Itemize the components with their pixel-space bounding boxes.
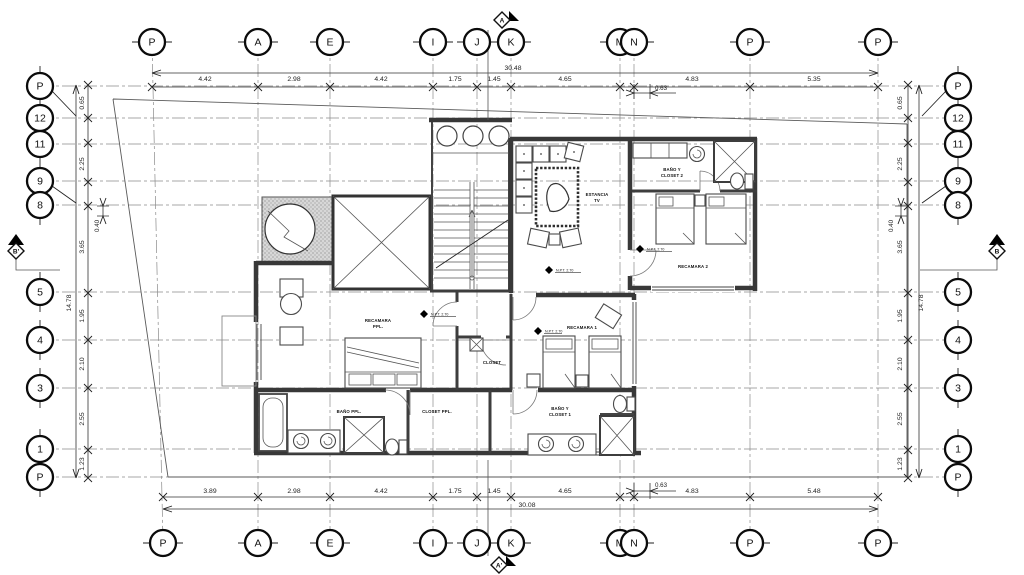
grid-bubble-label: N [630,538,638,550]
stair-treads [434,190,508,278]
bano-closet1-fixtures [528,396,635,456]
floor-plan-sheet: 4.42 2.98 4.42 1.75 1.45 4.65 4.83 5.35 … [0,0,1024,575]
dim-label: 3.89 [203,488,216,495]
tv-console-icon [547,184,569,212]
room-label-estancia: ESTANCIA [586,192,609,197]
skylight-circle [489,126,509,146]
grid-bubble-label: 8 [37,200,43,212]
dim-label: 5.48 [807,488,820,495]
skylight-circle [463,126,483,146]
bed [656,194,694,244]
window-gap [631,300,638,386]
room-label-closet: CLOSET [483,360,502,365]
side-table [549,234,560,245]
level-marker-label: N.P.T. 2.70 [647,248,664,252]
balcony-slab [222,316,256,386]
grid-bubble-label: N [630,37,638,49]
nightstand [527,374,540,387]
section-flag-icon [509,11,519,21]
room-label-bano-closet2: BAÑO Y [663,167,681,172]
nightstand [576,375,588,387]
void-double-height [333,196,430,289]
leader-elbows-right [922,91,946,203]
section-label-left: B' [13,249,20,256]
dim-label: 2.25 [79,157,86,170]
grid-bubble-label: 9 [37,176,43,188]
dim-total-left: 14.78 [66,294,73,311]
grid-bubble-label: A [254,37,261,49]
grid-bubble-label: P [159,538,166,550]
grid-bubble-label: A [254,538,261,550]
grid-bubble-label: P [874,538,881,550]
toilet-icon [614,396,627,413]
dim-label: 1.95 [79,309,86,322]
grid-bubble-label: 11 [953,139,964,151]
dim-label: 4.42 [374,76,387,83]
room-label-estancia: TV [594,198,600,203]
bed [706,194,746,244]
skylight-circle [437,126,457,146]
dim-total-top: 30.48 [504,65,521,72]
room-label-bano-ppl: BAÑO PPL. [337,409,362,414]
grid-bubble-label: 8 [955,200,961,212]
grid-bubble-label: 12 [34,113,46,125]
grid-bubble-label: 4 [37,335,43,347]
dim-label: 2.98 [287,76,300,83]
grid-bubble-label: E [326,37,333,49]
room-label-recamara2: RECAMARA 2 [678,264,708,269]
grid-bubble-label: I [432,37,435,49]
toilet-tank [399,440,407,454]
staircase [432,120,509,291]
grid-bubble-label: J [474,37,479,49]
grid-bubble-label: 4 [955,335,961,347]
sink-icon [569,437,584,452]
grid-bubble-label: P [36,472,43,484]
grid-bubble-label: P [954,81,961,93]
dim-label: 0.65 [897,96,904,109]
dim-sub-left: 0.40 [94,219,101,232]
grid-bubble-label: P [746,538,753,550]
level-marker-icon [636,245,644,253]
round-table [281,294,302,315]
sink-icon [539,437,554,452]
bano-ppl-fixtures [259,394,407,455]
nightstand [695,195,705,206]
vertical-gridlines [152,42,878,543]
dim-label: 1.95 [897,309,904,322]
grid-bubble-label: 1 [955,444,961,456]
room-label-recamara1: RECAMARA 1 [567,325,597,330]
dim-total-right: 14.78 [918,294,925,311]
section-label-top: A [500,18,505,25]
bath-closet-2-fixtures [633,141,755,189]
floor-plan-drawing: 4.42 2.98 4.42 1.75 1.45 4.65 4.83 5.35 … [0,0,1024,575]
dim-label: 4.42 [374,488,387,495]
chair [280,327,303,345]
level-marker-icon [545,266,553,274]
dim-label: 1.75 [448,76,461,83]
toilet-tank [627,397,635,411]
dim-label: 2.55 [897,412,904,425]
grid-bubble-label: 1 [37,444,43,456]
level-marker-label: N.P.T. 2.70 [545,330,562,334]
dim-label: 1.23 [897,457,904,470]
grid-bubble-label: K [507,538,514,550]
closet2-counter [633,143,687,158]
grid-bubble-label: 3 [955,383,961,395]
dim-label: 4.65 [558,488,571,495]
level-marker-icon [420,310,428,318]
grid-bubble-label: E [326,538,333,550]
door-bath1 [513,390,537,414]
dim-label: 4.65 [558,76,571,83]
recamara-ppl-furniture [222,279,421,388]
room-label-bano-closet1: BAÑO Y [551,406,569,411]
dim-label: 2.25 [897,157,904,170]
section-label-right: B [995,249,1000,256]
door-recamara1 [513,297,536,320]
grid-bubble-label: 9 [955,176,961,188]
level-marker-label: N.P.T. 2.70 [431,313,448,317]
toilet-tank [745,174,753,189]
room-label-recamara-ppl: PPL. [373,324,383,329]
level-marker-label: N.P.T. 2.70 [556,269,573,273]
sink-icon [690,147,705,162]
armchair [560,228,582,248]
bed [543,336,575,388]
window-gap [651,285,735,292]
grid-bubble-label: P [746,37,753,49]
dim-label: 2.55 [79,412,86,425]
dim-label: 2.10 [79,357,86,370]
terrace-hatch [262,197,333,264]
door-bathppl [385,390,410,415]
grid-bubble-label: 3 [37,383,43,395]
dim-sub-top: 0.63 [655,85,668,92]
recamara2-furniture [656,194,746,244]
sink-icon [294,434,309,449]
tree-icon [265,204,315,254]
grid-bubble-label: P [874,37,881,49]
dim-sub-bottom: 0.63 [655,482,668,489]
bed [589,336,621,388]
grid-bubble-label: I [432,538,435,550]
closet-column [470,338,483,351]
grid-bubble-label: 5 [955,287,961,299]
sink-icon [321,434,336,449]
dim-label: 1.45 [487,488,500,495]
dim-total-bottom: 30.08 [518,502,535,509]
dim-sub-right: 0.40 [888,219,895,232]
grid-bubble-label: 11 [35,139,46,151]
leader-elbows-left [52,91,76,203]
room-label-bano-closet1: CLOSET 1 [549,412,572,417]
dim-label: 1.75 [448,488,461,495]
grid-bubble-label: K [507,37,514,49]
dim-label: 0.65 [79,96,86,109]
chair [595,304,621,329]
toilet-icon [386,439,399,455]
grid-bubble-label: 5 [37,287,43,299]
recamara1-furniture [527,304,622,388]
armchair [528,228,550,248]
dim-label: 4.42 [198,76,211,83]
dim-label: 2.98 [287,488,300,495]
room-label-closet-ppl: CLOSET PPL. [422,409,452,414]
toilet-icon [731,173,744,189]
section-flag-icon [506,556,516,566]
dim-label: 1.23 [79,457,86,470]
estancia-furniture [516,142,584,248]
room-label-recamara-ppl: RECAMARA [365,318,391,323]
dim-label: 4.83 [685,76,698,83]
window-balcony-door [257,324,261,380]
dim-label: 4.83 [685,488,698,495]
section-label-bottom: A' [496,563,503,570]
dim-label: 1.45 [487,76,500,83]
room-label-bano-closet2: CLOSET 2 [661,173,684,178]
level-marker-icon [534,327,542,335]
bed-king [345,338,421,388]
grid-bubble-label: P [36,81,43,93]
grid-bubble-label: J [474,538,479,550]
dim-label: 5.35 [807,76,820,83]
grid-bubble-label: P [954,472,961,484]
dim-label: 3.65 [79,240,86,253]
dim-label: 3.65 [897,240,904,253]
grid-bubble-label: P [148,37,155,49]
grid-bubble-label: 12 [952,113,964,125]
dim-label: 2.10 [897,357,904,370]
